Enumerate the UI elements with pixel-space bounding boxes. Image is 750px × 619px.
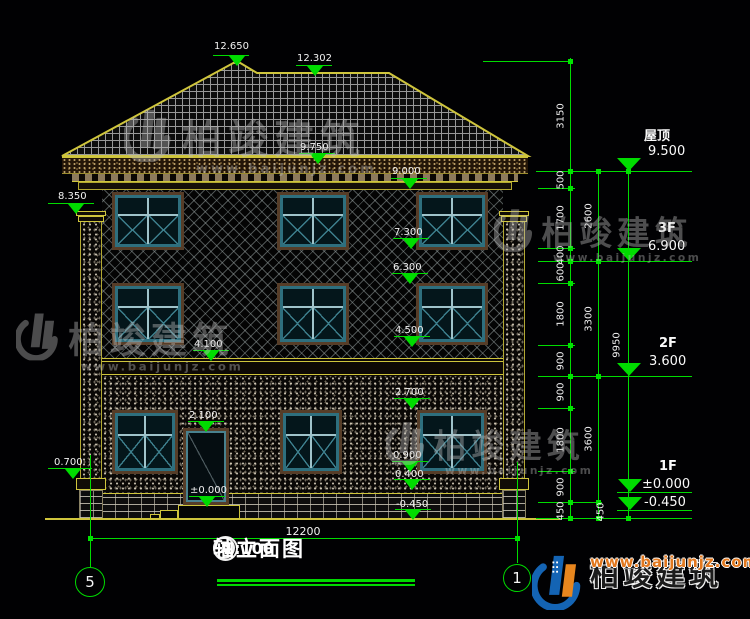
floor-elevation-value: 9.500 [648,144,685,159]
title-underline-thin [217,584,415,586]
window-pane-casement [146,436,172,468]
watermark: 柏竣建筑www.baijunjz.com [16,310,234,364]
entry-step [178,505,240,519]
title-underline-thick [217,579,415,582]
elevation-label: 0.700 [54,457,83,468]
window-pane [453,198,482,214]
elevation-label: 6.300 [393,262,422,273]
brand-logo-url: www.baijunjz.com [590,553,750,571]
watermark-brand: 柏竣建筑 [542,207,693,255]
window-grid [283,289,343,339]
watermark-row: 柏竣建筑 [494,206,692,255]
brand-logo-icon [532,552,584,610]
window [112,410,178,474]
watermark-url: www.baijunjz.com [196,162,377,177]
elevation-label: 8.350 [58,191,87,202]
window-pane-casement [118,216,147,244]
window-pane [314,198,343,214]
window-pane [312,416,336,434]
floor-level-triangle [618,497,642,510]
window-pane [314,289,343,306]
elevation-label: 2.700 [395,387,424,398]
dimension-tick [568,169,573,174]
window-pane-casement [314,216,343,244]
elevation-marker-triangle [229,56,245,66]
dimension-tick [568,516,573,521]
floor-level-triangle [617,158,641,171]
dimension-tick [568,374,573,379]
elevation-label: 4.500 [395,325,424,336]
window [277,283,349,345]
window-pane [149,198,178,214]
elevation-marker-triangle [402,179,418,189]
elevation-marker-triangle [68,204,84,214]
window [280,410,342,474]
title-scale: 1:100 [223,539,274,558]
dimension-value: 500 [556,170,567,189]
dimension-value: 450 [596,502,607,521]
window [277,192,349,250]
dimension-tick [568,186,573,191]
window-pane [283,198,312,214]
window-pane-casement [312,436,336,468]
elevation-label: 12.302 [297,53,332,64]
floor-label: 2F [659,336,677,351]
watermark-logo-icon [16,310,61,364]
elevation-marker-triangle [402,274,418,284]
floor-level-triangle [618,479,642,492]
watermark: 柏竣建筑www.baijunjz.com [124,106,366,166]
elevation-marker-triangle [65,469,81,479]
window-pane [118,198,147,214]
elevation-marker-triangle [404,480,420,490]
window-grid [422,289,482,339]
axis-bubble: 1 [503,564,531,592]
dimension-value: 900 [556,351,567,370]
watermark: 柏竣建筑www.baijunjz.com [386,419,584,468]
watermark-url: www.baijunjz.com [81,360,244,374]
elevation-marker-triangle [307,66,323,76]
window [416,192,488,250]
watermark-row: 柏竣建筑 [386,419,584,468]
window-pane-casement [422,308,451,339]
dimension-extension-line [483,61,571,62]
window-grid [118,416,172,468]
elevation-label: 2.100 [189,410,218,421]
window-pane-casement [149,216,178,244]
dimension-value: 9950 [612,332,623,357]
floor-elevation-value: 3.600 [649,354,686,369]
watermark-logo-icon [494,206,535,255]
dimension-tick [626,516,631,521]
window-pane [149,289,178,306]
elevation-label: 12.650 [214,41,249,52]
dimension-value: 600 [556,262,567,281]
elevation-marker-triangle [404,399,420,409]
dimension-extension-line [538,376,692,377]
dimension-tick [596,374,601,379]
window [112,192,184,250]
dimension-extension-line [617,510,692,511]
watermark-brand: 柏竣建筑 [434,420,585,468]
dimension-tick [568,500,573,505]
window-pane [118,289,147,306]
pillar-left-base-cap [76,478,106,490]
window-pane-casement [453,308,482,339]
window-pane-casement [283,216,312,244]
window-pane [146,416,172,434]
axis-bubble: 5 [75,567,105,597]
floor-elevation-value: -0.450 [644,495,686,510]
elevation-label: 9.000 [392,166,421,177]
window-pane [283,289,312,306]
band-line [102,374,503,375]
pillar-left-base [79,490,103,519]
watermark-logo-icon [124,106,174,166]
elevation-label: 7.300 [394,227,423,238]
axis-line [90,455,91,567]
cad-elevation-drawing: 3150500170040060018009009001800900450260… [0,0,750,619]
elevation-marker-triangle [404,337,420,347]
dimension-value: 1800 [556,301,567,326]
window-pane-casement [283,308,312,339]
elevation-label: ±0.000 [190,485,227,496]
watermark-url: www.baijunjz.com [445,465,593,477]
window-pane [422,198,451,214]
brand-logo: 柏竣建筑 www.baijunjz.com [532,552,590,610]
floor-elevation-value: ±0.000 [642,477,690,492]
window-pane-casement [453,216,482,244]
window-pane [286,416,310,434]
dimension-tick [568,281,573,286]
elevation-marker-triangle [199,497,215,507]
window-grid [283,198,343,244]
pillar-right-base-cap [499,478,529,490]
dimension-tick [596,169,601,174]
window-pane-casement [118,436,144,468]
cornice-lip [78,182,512,190]
watermark-row: 柏竣建筑 [16,310,234,364]
window-grid [422,198,482,244]
dimension-tick [568,406,573,411]
window-pane [422,289,451,306]
window-pane [453,289,482,306]
floor-level-triangle [617,363,641,376]
watermark-row: 柏竣建筑 [124,106,366,166]
floor-label: 屋顶 [644,125,670,144]
window-grid [118,198,178,244]
window-pane [118,416,144,434]
watermark-brand: 柏竣建筑 [182,107,366,165]
elevation-marker-triangle [403,239,419,249]
pillar-right-base [502,490,526,519]
ground-line [45,518,560,520]
watermark: 柏竣建筑www.baijunjz.com [494,206,692,255]
dimension-value: 3150 [556,103,567,128]
dimension-value: 3300 [584,306,595,331]
window-pane-casement [314,308,343,339]
elevation-marker-triangle [405,510,421,520]
elevation-marker-triangle [198,422,214,432]
dimension-value: 900 [556,382,567,401]
dimension-tick [568,343,573,348]
window-grid [286,416,336,468]
dimension-value: 3600 [584,426,595,451]
watermark-brand: 柏竣建筑 [68,311,234,363]
floor-label: 1F [659,459,677,474]
window-pane-casement [286,436,310,468]
dimension-value: 900 [556,477,567,496]
dimension-value: 450 [556,501,567,520]
window-pane-casement [422,216,451,244]
watermark-url: www.baijunjz.com [553,252,701,264]
watermark-logo-icon [386,419,427,468]
dimension-tick [568,59,573,64]
dimension-extension-line [617,492,692,493]
